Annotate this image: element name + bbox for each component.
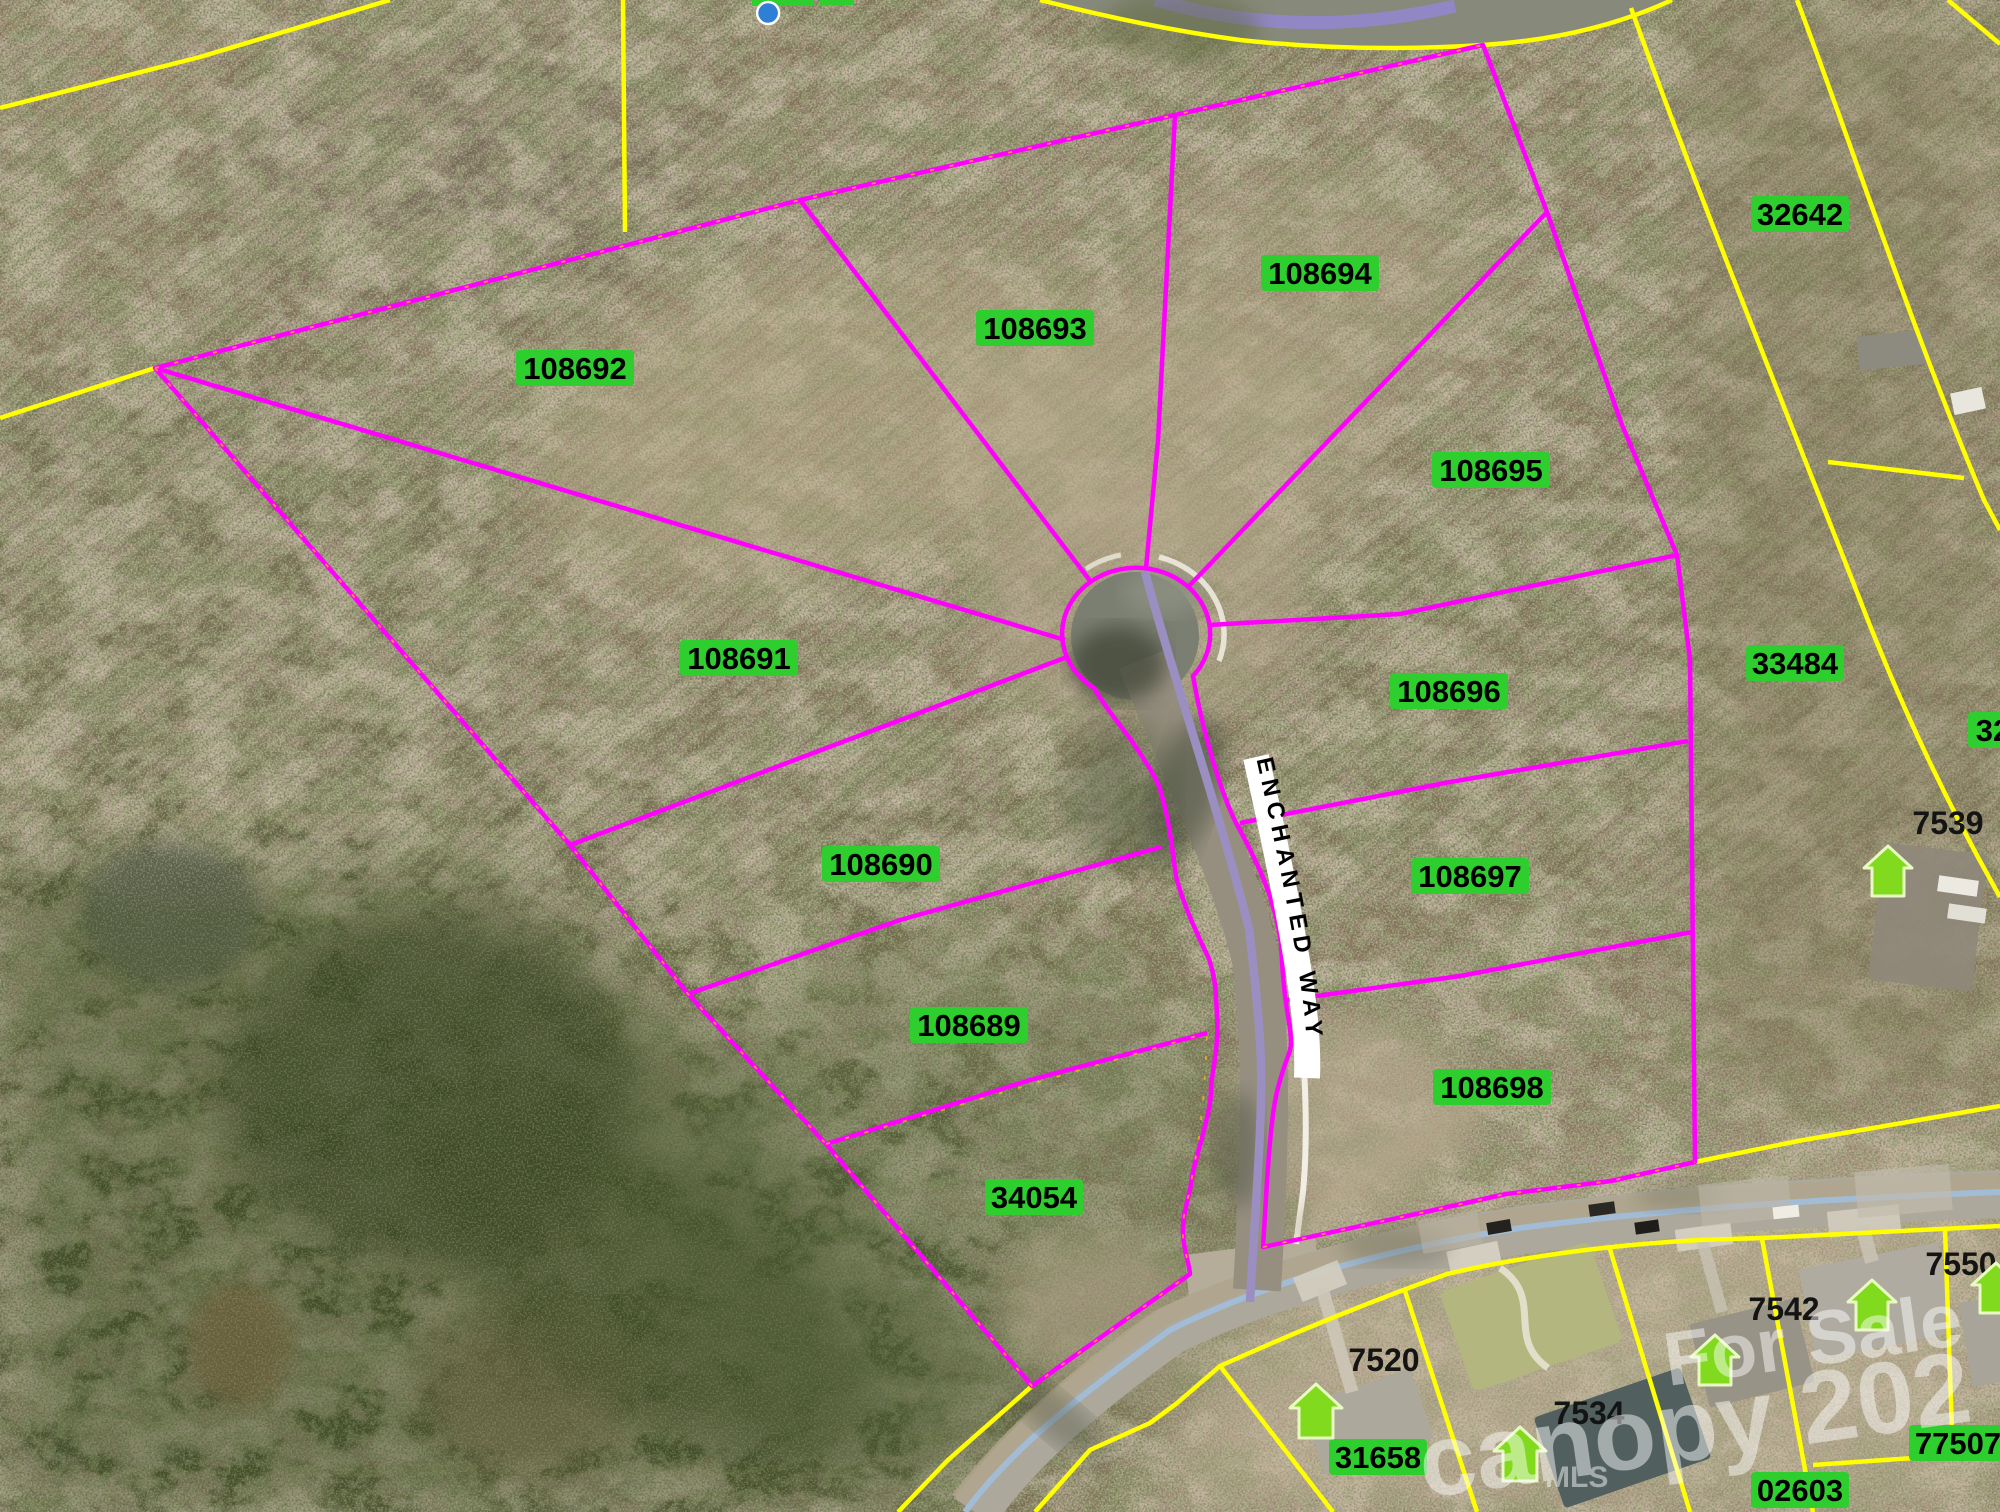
svg-text:32642: 32642 [1757, 197, 1843, 232]
svg-text:108697: 108697 [1418, 859, 1521, 894]
svg-text:31658: 31658 [1335, 1440, 1421, 1475]
svg-text:7539: 7539 [1912, 805, 1983, 841]
svg-text:34054: 34054 [991, 1180, 1078, 1215]
svg-text:108694: 108694 [1268, 256, 1372, 291]
svg-text:108698: 108698 [1440, 1070, 1543, 1105]
svg-text:33484: 33484 [1752, 646, 1839, 681]
svg-text:108695: 108695 [1439, 453, 1542, 488]
svg-text:MLS: MLS [1545, 1461, 1608, 1494]
svg-text:108693: 108693 [983, 311, 1086, 346]
svg-text:108696: 108696 [1397, 674, 1500, 709]
svg-text:108691: 108691 [687, 641, 790, 676]
svg-text:02603: 02603 [1757, 1473, 1843, 1508]
svg-text:108690: 108690 [829, 847, 932, 882]
svg-text:7520: 7520 [1348, 1342, 1419, 1378]
svg-text:108689: 108689 [917, 1008, 1020, 1043]
svg-text:32: 32 [1976, 713, 2000, 748]
svg-text:108692: 108692 [523, 351, 626, 386]
